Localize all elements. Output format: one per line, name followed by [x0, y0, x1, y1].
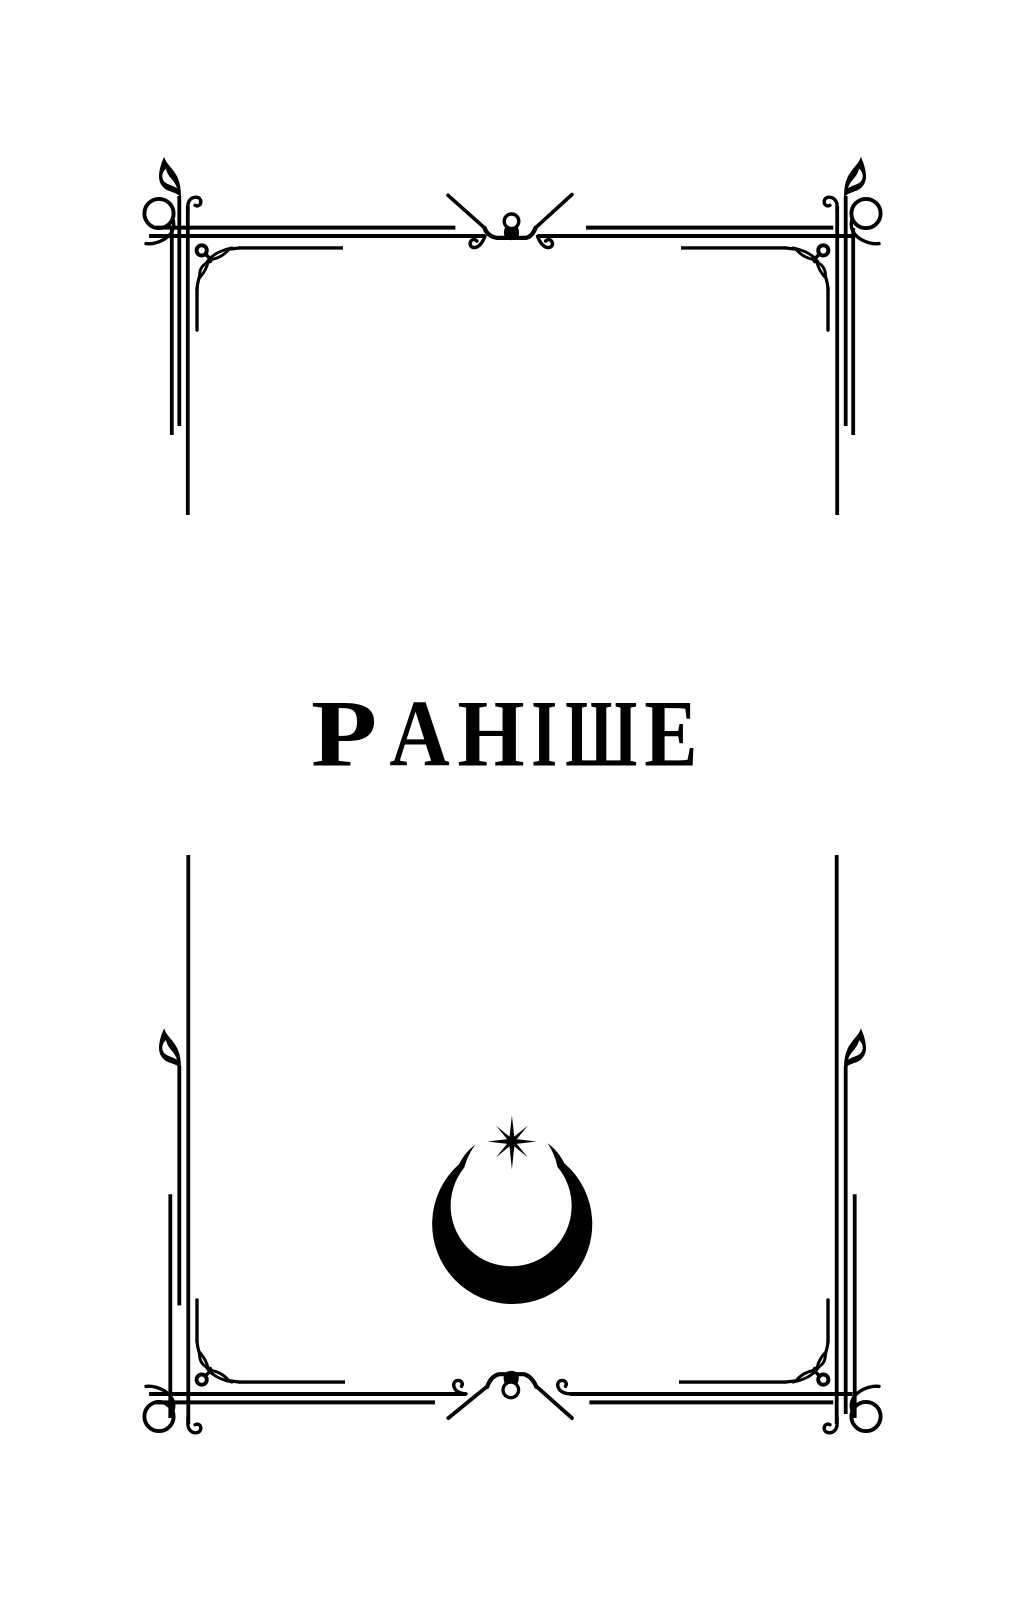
- svg-text:Н: Н: [457, 681, 524, 787]
- svg-text:Ш: Ш: [565, 681, 637, 787]
- svg-text:Р: Р: [311, 682, 377, 787]
- svg-text:А: А: [389, 682, 449, 787]
- svg-text:Е: Е: [644, 681, 697, 786]
- svg-text:І: І: [531, 681, 557, 786]
